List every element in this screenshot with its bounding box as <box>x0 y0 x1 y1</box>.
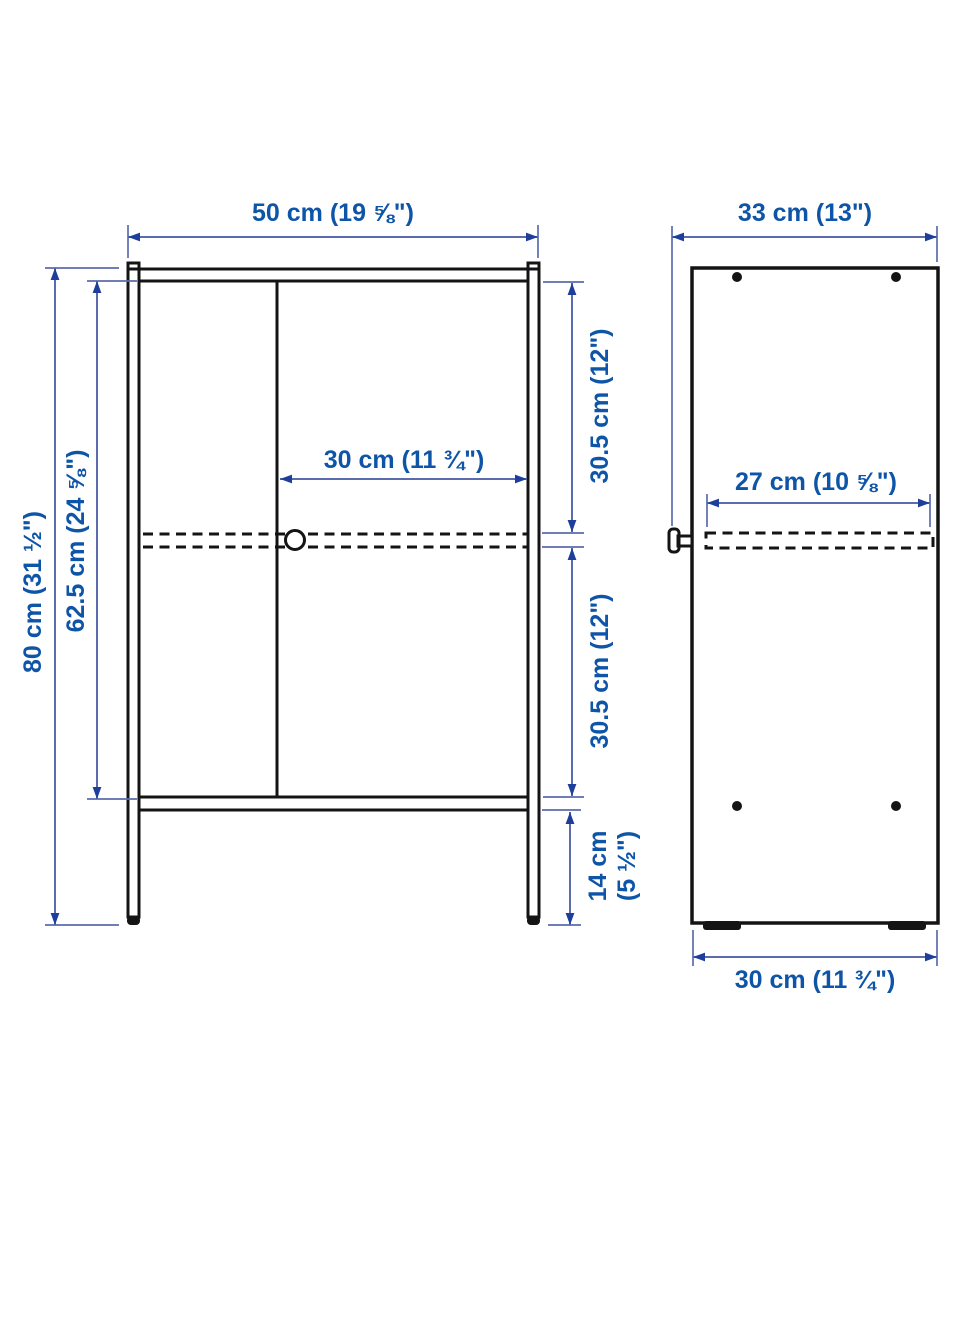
front-left-foot <box>127 916 140 925</box>
dim-front-upper-compartment: 30.5 cm (12") <box>542 282 614 533</box>
side-base-depth-label: 30 cm (11 ¾") <box>735 966 896 994</box>
dim-front-width: 50 cm (19 ⅝") <box>128 199 538 258</box>
dim-front-body-height: 62.5 cm (24 ⅝") <box>62 281 137 799</box>
side-view <box>669 268 938 930</box>
front-view <box>127 263 540 925</box>
dimension-diagram-page: 50 cm (19 ⅝") 33 cm (13") 80 cm (31 ½") … <box>0 0 960 1343</box>
front-leg-clearance-label-line1: 14 cm <box>584 831 612 902</box>
side-panel <box>692 268 938 923</box>
dim-front-leg-clearance: 14 cm (5 ½") <box>542 810 641 925</box>
front-lower-compartment-label: 30.5 cm (12") <box>586 594 614 749</box>
side-foot-back <box>888 921 926 930</box>
front-leg-clearance-label-line2: (5 ½") <box>613 831 641 901</box>
front-height-label: 80 cm (31 ½") <box>19 511 47 673</box>
screw-hole-bottom-front <box>732 801 742 811</box>
screw-hole-top-back <box>891 272 901 282</box>
dim-side-base-depth: 30 cm (11 ¾") <box>693 930 937 994</box>
front-right-foot <box>527 916 540 925</box>
side-shelf-depth-label: 27 cm (10 ⅝") <box>735 468 897 496</box>
door-knob-cap <box>669 529 679 552</box>
dim-front-door-width: 30 cm (11 ¾") <box>280 446 527 479</box>
dim-front-lower-compartment: 30.5 cm (12") <box>542 547 614 797</box>
front-width-label: 50 cm (19 ⅝") <box>252 199 414 227</box>
side-foot-front <box>703 921 741 930</box>
dimension-diagram: 50 cm (19 ⅝") 33 cm (13") 80 cm (31 ½") … <box>0 0 960 1343</box>
door-handle-hole <box>286 531 305 550</box>
front-body-height-label: 62.5 cm (24 ⅝") <box>62 450 90 633</box>
screw-hole-top-front <box>732 272 742 282</box>
front-right-leg <box>528 263 539 917</box>
front-upper-compartment-label: 30.5 cm (12") <box>586 329 614 484</box>
front-door-width-label: 30 cm (11 ¾") <box>324 446 485 474</box>
front-left-leg <box>128 263 139 917</box>
screw-hole-bottom-back <box>891 801 901 811</box>
side-depth-label: 33 cm (13") <box>738 199 872 227</box>
